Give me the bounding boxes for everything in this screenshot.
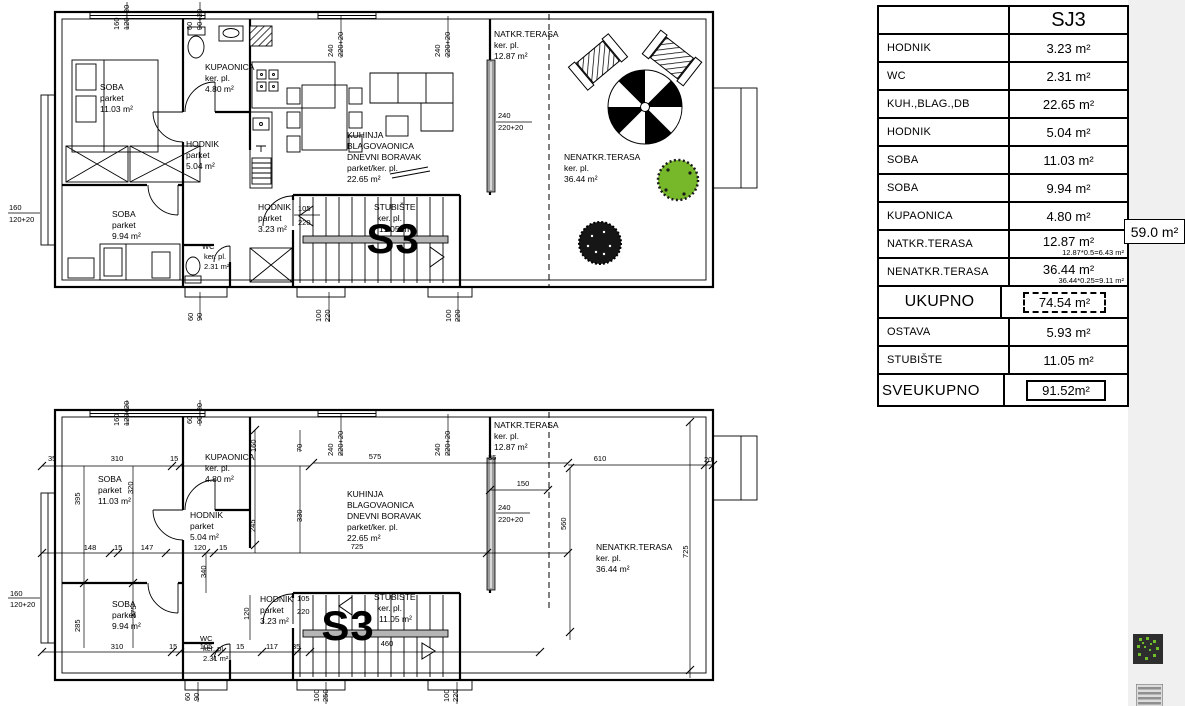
room-name: NATKR.TERASA: [494, 29, 559, 39]
dim-text: 245: [248, 519, 257, 532]
table-row: NENATKR.TERASA 36.44 m² 36.44*0.25=9.11 …: [879, 257, 1127, 285]
dim-text: 120+20: [9, 215, 34, 224]
dim-text: 240: [498, 503, 511, 512]
room-floor: ker. pl.: [494, 40, 519, 50]
row-label: NATKR.TERASA: [879, 231, 1010, 257]
row-value: 4.80 m²: [1010, 203, 1127, 229]
row-value: 91.52m²: [1026, 380, 1106, 401]
room-label-stubiste: STUBIŠTE ker. pl. 11.05 m²: [374, 592, 416, 624]
room-label-soba1: SOBA parket 11.03 m²: [100, 82, 133, 114]
room-area: 5.04 m²: [190, 532, 219, 542]
dim-text: 120+20: [122, 5, 131, 30]
row-value: 22.65 m²: [1010, 91, 1127, 117]
dim-text: 310: [111, 642, 124, 651]
room-name: KUHINJA: [347, 489, 384, 499]
room-name: HODNIK: [260, 594, 293, 604]
dim-text: 105: [298, 204, 311, 213]
dimension-lines-plan2: [8, 400, 717, 704]
row-value: 9.94 m²: [1010, 175, 1127, 201]
row-label: HODNIK: [879, 119, 1010, 145]
dim-text: 285: [73, 619, 82, 632]
room-name: WC: [202, 242, 215, 251]
dim-text: 220+20: [498, 123, 523, 132]
room-name: SOBA: [112, 209, 136, 219]
plan-lower: SOBA parket 11.03 m² KUPAONICA ker. pl. …: [8, 400, 757, 704]
table-row: SOBA 11.03 m²: [879, 145, 1127, 173]
left-ledge: [41, 95, 55, 245]
window-strips: [90, 13, 376, 19]
interior-walls: [62, 412, 549, 680]
table-row: SOBA 9.94 m²: [879, 173, 1127, 201]
right-structure: [713, 88, 757, 188]
row-value: 2.31 m²: [1010, 63, 1127, 89]
row-value: 3.23 m²: [1010, 35, 1127, 61]
room-label-kupaonica: KUPAONICA ker. pl. 4.80 m²: [205, 62, 255, 94]
room-area: 4.80 m²: [205, 474, 234, 484]
right-panel: [1128, 0, 1185, 706]
dim-text: 310: [111, 454, 124, 463]
room-floor: parket: [112, 220, 136, 230]
dim-text: 15: [219, 543, 227, 552]
room-area: 5.04 m²: [186, 161, 215, 171]
table-header-row: SJ3: [879, 7, 1127, 33]
dim-text: 220+20: [336, 32, 345, 57]
dim-text: 120+20: [122, 401, 131, 426]
dim-text: 148: [84, 543, 97, 552]
room-name: STUBIŠTE: [374, 592, 416, 602]
row-label: NENATKR.TERASA: [879, 259, 1010, 285]
unit-label: S3: [366, 215, 419, 262]
dim-text: 610: [594, 454, 607, 463]
tree-green: [658, 160, 698, 200]
sofa: [370, 73, 453, 136]
area-side-badge: 59.0 m²: [1124, 219, 1185, 244]
table-row: WC 2.31 m²: [879, 61, 1127, 89]
room-area: 2.31 m²: [204, 262, 230, 271]
room-name: DNEVNI BORAVAK: [347, 511, 422, 521]
room-floor: ker. pl.: [204, 252, 226, 261]
row-value-with-note: 12.87 m² 12.87*0.5=6.43 m²: [1010, 231, 1127, 257]
exterior-landings: [185, 287, 472, 297]
row-value: 12.87 m²: [1010, 234, 1127, 249]
row-label: STUBIŠTE: [879, 347, 1010, 373]
row-value-boxed: 74.54 m²: [1002, 287, 1127, 317]
room-floor: ker. pl.: [564, 163, 589, 173]
tree-dark: [579, 222, 621, 264]
parasol: [608, 70, 682, 144]
dim-text: 90: [195, 313, 204, 321]
dim-text: 240: [326, 443, 335, 456]
room-labels-plan1: SOBA parket 11.03 m² KUPAONICA ker. pl. …: [100, 29, 641, 271]
dim-text: 220: [453, 309, 462, 322]
dim-text: 15: [114, 543, 122, 552]
row-label: UKUPNO: [879, 287, 1002, 317]
room-floor: parket: [98, 485, 122, 495]
room-floor: parket/ker. pl.: [347, 522, 398, 532]
plant-tool-icon[interactable]: [1133, 634, 1163, 669]
dim-text: 160: [9, 203, 22, 212]
dim-text: 220: [297, 607, 310, 616]
row-note: 36.44*0.25=9.11 m²: [1010, 277, 1127, 285]
dim-text: 90+20: [195, 9, 204, 30]
row-label: HODNIK: [879, 35, 1010, 61]
dim-text: 160: [112, 17, 121, 30]
room-floor: ker. pl.: [596, 553, 621, 563]
room-labels-plan2: SOBA parket 11.03 m² KUPAONICA ker. pl. …: [98, 420, 673, 663]
dim-text: 70: [295, 444, 304, 452]
room-name: NATKR.TERASA: [494, 420, 559, 430]
room-area: 3.23 m²: [258, 224, 287, 234]
dim-text: 220: [323, 309, 332, 322]
dim-text: 147: [141, 543, 154, 552]
bed-soba2: [68, 244, 180, 280]
row-value: 11.05 m²: [1010, 347, 1127, 373]
room-label-soba2: SOBA parket 9.94 m²: [112, 209, 141, 241]
table-row-ukupno: UKUPNO 74.54 m²: [879, 285, 1127, 317]
dim-text: 575: [369, 452, 382, 461]
table-row: HODNIK 5.04 m²: [879, 117, 1127, 145]
dim-text: 60: [186, 313, 195, 321]
dim-text: 460: [381, 639, 394, 648]
room-area: 12.87 m²: [494, 51, 528, 61]
row-value-with-note: 36.44 m² 36.44*0.25=9.11 m²: [1010, 259, 1127, 285]
room-area: 9.94 m²: [112, 231, 141, 241]
room-floor: ker. pl.: [205, 73, 230, 83]
kitchen: [250, 62, 335, 188]
dim-text: 100: [442, 689, 451, 702]
dim-text: 220: [451, 689, 460, 702]
row-note: 12.87*0.5=6.43 m²: [1010, 249, 1127, 257]
dim-text: 120: [194, 543, 207, 552]
dim-text: 117: [266, 642, 278, 651]
room-area: 36.44 m²: [564, 174, 598, 184]
dim-text: 560: [559, 517, 568, 530]
room-area: 4.80 m²: [205, 84, 234, 94]
dim-text: 35: [292, 642, 300, 651]
header-empty-cell: [879, 7, 1010, 33]
dim-text: 160: [112, 413, 121, 426]
room-label-hodnik1: HODNIK parket 5.04 m²: [190, 510, 223, 542]
room-name: HODNIK: [186, 139, 219, 149]
dim-text: 240: [433, 443, 442, 456]
unit-label: S3: [321, 602, 374, 649]
dim-text: 60: [183, 693, 192, 701]
room-name: KUPAONICA: [205, 62, 255, 72]
room-name: SOBA: [100, 82, 124, 92]
window-strips: [90, 411, 376, 417]
dim-text: 240: [433, 44, 442, 57]
dim-text: 160: [10, 589, 23, 598]
dim-text: 60: [185, 22, 194, 30]
unit-header: SJ3: [1010, 7, 1127, 33]
room-floor: parket: [186, 150, 210, 160]
row-value: 36.44 m²: [1010, 262, 1127, 277]
room-name: NENATKR.TERASA: [596, 542, 673, 552]
stairs-tool-icon[interactable]: [1136, 684, 1163, 706]
dim-text: 320: [126, 481, 135, 494]
dim-text: 35: [48, 454, 56, 463]
dim-text: 395: [73, 492, 82, 505]
dim-text: 120: [242, 607, 251, 620]
table-row-sveukupno: SVEUKUPNO 91.52m²: [879, 373, 1127, 405]
drawing-sheet: SOBA parket 11.03 m² KUPAONICA ker. pl. …: [0, 0, 1185, 706]
row-value-boxed: 91.52m²: [1005, 375, 1127, 405]
table-row: NATKR.TERASA 12.87 m² 12.87*0.5=6.43 m²: [879, 229, 1127, 257]
wc-toilet: [185, 257, 201, 283]
row-label: KUH.,BLAG.,DB: [879, 91, 1010, 117]
room-label-kupaonica: KUPAONICA ker. pl. 4.80 m²: [205, 452, 255, 484]
interior-walls: [62, 14, 549, 287]
dimension-labels-plan1: 160 120+20 60 90+20 240 220+20 240 220+2…: [8, 2, 532, 322]
dim-text: 105: [200, 642, 213, 651]
plan-upper: SOBA parket 11.03 m² KUPAONICA ker. pl. …: [8, 2, 757, 322]
room-name: SOBA: [98, 474, 122, 484]
dim-text: 60: [185, 416, 194, 424]
dim-text: 100: [444, 309, 453, 322]
room-area: 36.44 m²: [596, 564, 630, 574]
row-value: 74.54 m²: [1023, 292, 1106, 313]
room-name: KUHINJA: [347, 130, 384, 140]
dim-text: 330: [295, 509, 304, 522]
dim-text: 375: [129, 605, 138, 618]
row-label: SOBA: [879, 175, 1010, 201]
table-row: KUPAONICA 4.80 m²: [879, 201, 1127, 229]
room-floor: ker. pl.: [377, 603, 402, 613]
room-floor: parket: [100, 93, 124, 103]
dim-text: 100: [312, 689, 321, 702]
room-label-hodnik2: HODNIK parket 3.23 m²: [260, 594, 293, 626]
room-area: 22.65 m²: [347, 174, 381, 184]
room-area: 9.94 m²: [112, 621, 141, 631]
dim-text: 15: [169, 642, 177, 651]
left-ledge: [41, 493, 55, 643]
dim-text: 150: [517, 479, 530, 488]
row-label: OSTAVA: [879, 319, 1010, 345]
exterior-landings: [185, 680, 472, 690]
room-name: DNEVNI BORAVAK: [347, 152, 422, 162]
dim-text: 220+20: [443, 431, 452, 456]
dim-text: 160: [249, 439, 258, 452]
room-area: 2.31 m²: [203, 654, 229, 663]
room-area: 3.23 m²: [260, 616, 289, 626]
row-value: 5.04 m²: [1010, 119, 1127, 145]
dim-text: 220+20: [443, 32, 452, 57]
room-label-kuhinja: KUHINJA BLAGOVAONICA DNEVNI BORAVAK park…: [347, 130, 422, 184]
room-name: NENATKR.TERASA: [564, 152, 641, 162]
dim-text: 35: [488, 453, 496, 462]
room-label-hodnik2: HODNIK parket 3.23 m²: [258, 202, 291, 234]
dim-text: 100: [314, 309, 323, 322]
room-label-nenatkr: NENATKR.TERASA ker. pl. 36.44 m²: [564, 152, 641, 184]
room-area: 11.03 m²: [98, 496, 131, 506]
dim-text: 90+20: [195, 403, 204, 424]
dim-text: 20: [704, 455, 712, 464]
room-name: HODNIK: [190, 510, 223, 520]
room-floor: parket/ker. pl.: [347, 163, 398, 173]
room-floor: ker. pl.: [494, 431, 519, 441]
right-structure: [713, 436, 757, 500]
row-label: KUPAONICA: [879, 203, 1010, 229]
room-floor: ker. pl.: [205, 463, 230, 473]
dim-text: 105: [297, 594, 310, 603]
room-name: BLAGOVAONICA: [347, 500, 414, 510]
room-name: BLAGOVAONICA: [347, 141, 414, 151]
room-name: STUBIŠTE: [374, 202, 416, 212]
room-area: 11.03 m²: [100, 104, 133, 114]
floor-plans-canvas: SOBA parket 11.03 m² KUPAONICA ker. pl. …: [0, 0, 770, 706]
dim-text: 250: [321, 689, 330, 702]
row-label: SVEUKUPNO: [879, 375, 1005, 405]
dim-text: 220: [298, 218, 311, 227]
room-floor: parket: [258, 213, 282, 223]
room-label-kuhinja: KUHINJA BLAGOVAONICA DNEVNI BORAVAK park…: [347, 489, 422, 543]
room-area: 11.05 m²: [379, 614, 412, 624]
row-value: 5.93 m²: [1010, 319, 1127, 345]
room-label-nenatkr: NENATKR.TERASA ker. pl. 36.44 m²: [596, 542, 673, 574]
dim-text: 725: [351, 542, 364, 551]
row-label: WC: [879, 63, 1010, 89]
dim-text: 340: [199, 565, 208, 578]
dim-text: 220+20: [336, 431, 345, 456]
room-label-hodnik1: HODNIK parket 5.04 m²: [186, 139, 219, 171]
dim-text: 15: [236, 642, 244, 651]
row-value: 11.03 m²: [1010, 147, 1127, 173]
dim-text: 120+20: [10, 600, 35, 609]
table-row: OSTAVA 5.93 m²: [879, 317, 1127, 345]
room-floor: parket: [190, 521, 214, 531]
dim-text: 90: [192, 693, 201, 701]
room-name: KUPAONICA: [205, 452, 255, 462]
room-floor: parket: [260, 605, 284, 615]
room-name: HODNIK: [258, 202, 291, 212]
door-swings: [148, 480, 293, 660]
row-label: SOBA: [879, 147, 1010, 173]
area-table: SJ3 HODNIK 3.23 m² WC 2.31 m² KUH.,BLAG.…: [877, 5, 1129, 407]
table-row: KUH.,BLAG.,DB 22.65 m²: [879, 89, 1127, 117]
dim-text: 15: [170, 454, 178, 463]
table-row: STUBIŠTE 11.05 m²: [879, 345, 1127, 373]
table-row: HODNIK 3.23 m²: [879, 33, 1127, 61]
dim-text: 725: [681, 545, 690, 558]
dim-text: 240: [326, 44, 335, 57]
room-area: 12.87 m²: [494, 442, 528, 452]
dim-text: 220+20: [498, 515, 523, 524]
dim-text: 240: [498, 111, 511, 120]
